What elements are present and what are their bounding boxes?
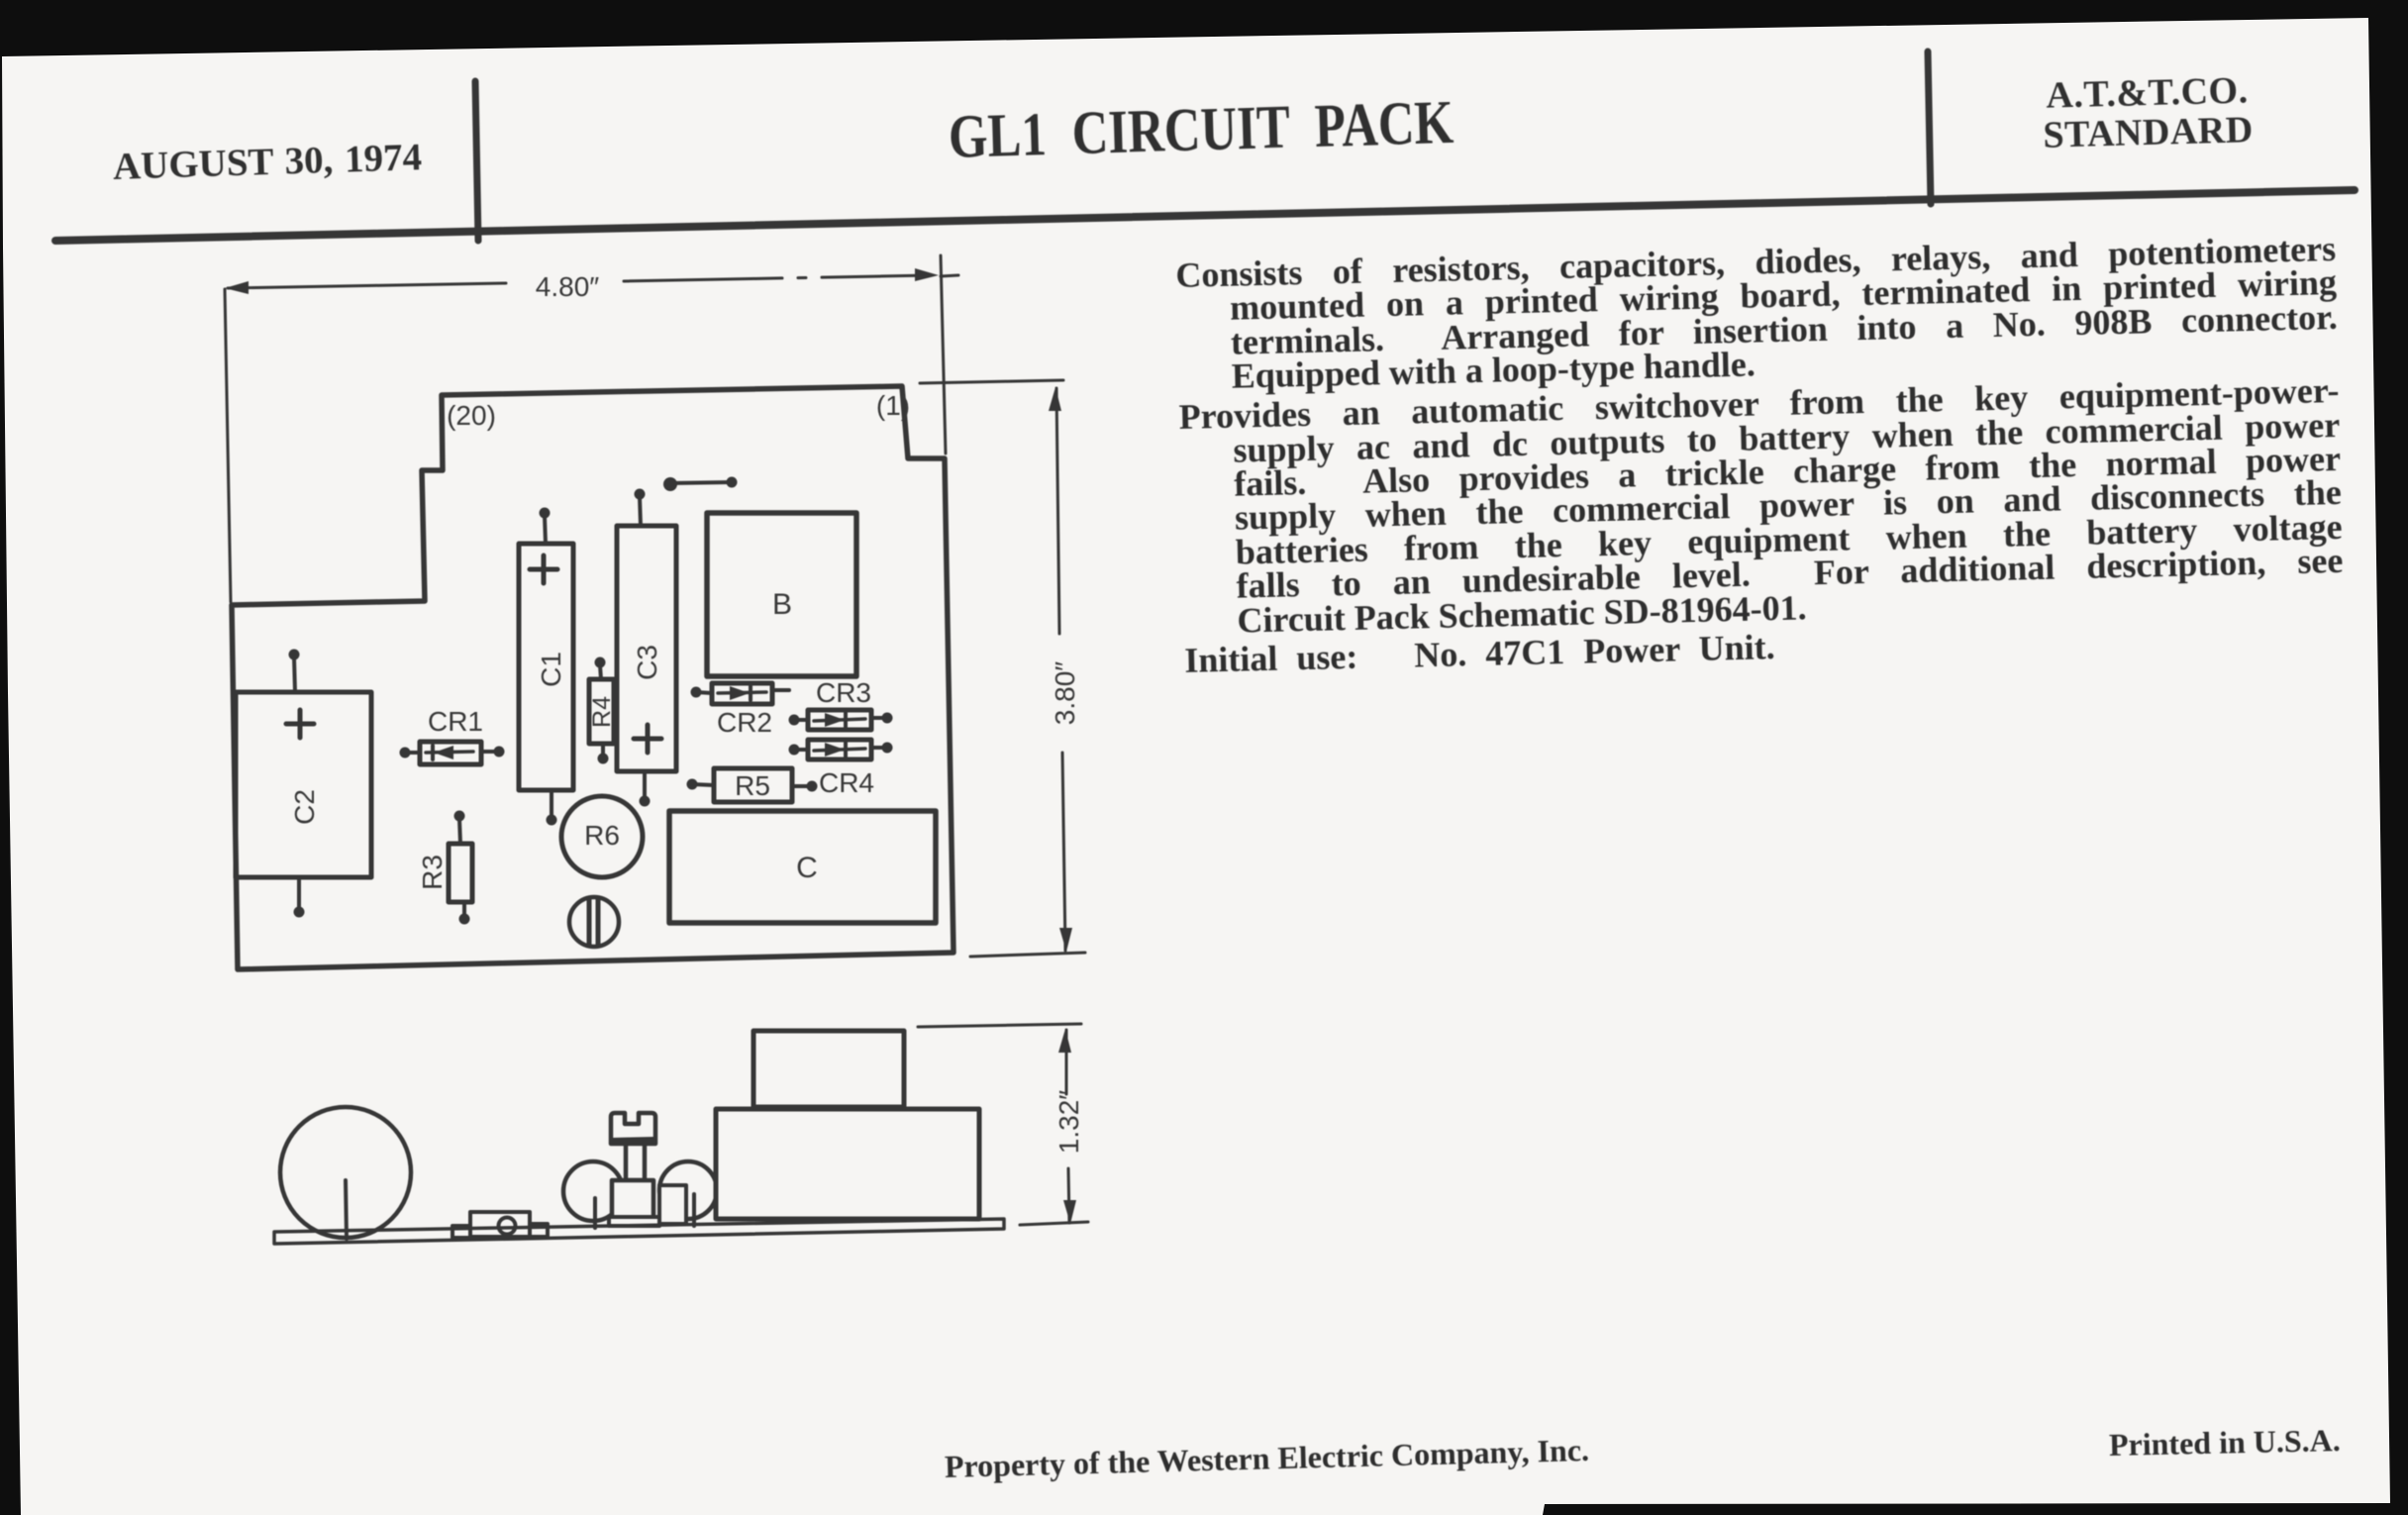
svg-text:R6: R6 — [584, 820, 620, 851]
svg-text:4.80″: 4.80″ — [536, 271, 599, 302]
svg-text:(20): (20) — [447, 400, 496, 431]
svg-text:C: C — [796, 852, 818, 884]
svg-text:1.32″: 1.32″ — [1053, 1090, 1084, 1154]
svg-text:CR2: CR2 — [717, 707, 772, 738]
svg-text:R3: R3 — [417, 855, 448, 890]
svg-text:3.80″: 3.80″ — [1050, 661, 1080, 725]
svg-text:C1: C1 — [536, 652, 566, 687]
svg-text:CR3: CR3 — [816, 677, 871, 708]
svg-text:(1): (1) — [876, 390, 910, 421]
svg-text:R4: R4 — [588, 696, 616, 728]
svg-text:B: B — [772, 588, 792, 621]
svg-text:C3: C3 — [632, 645, 662, 680]
svg-text:CR1: CR1 — [428, 706, 483, 737]
svg-text:R5: R5 — [735, 770, 770, 801]
svg-text:CR4: CR4 — [819, 767, 874, 798]
svg-text:C2: C2 — [289, 789, 320, 825]
